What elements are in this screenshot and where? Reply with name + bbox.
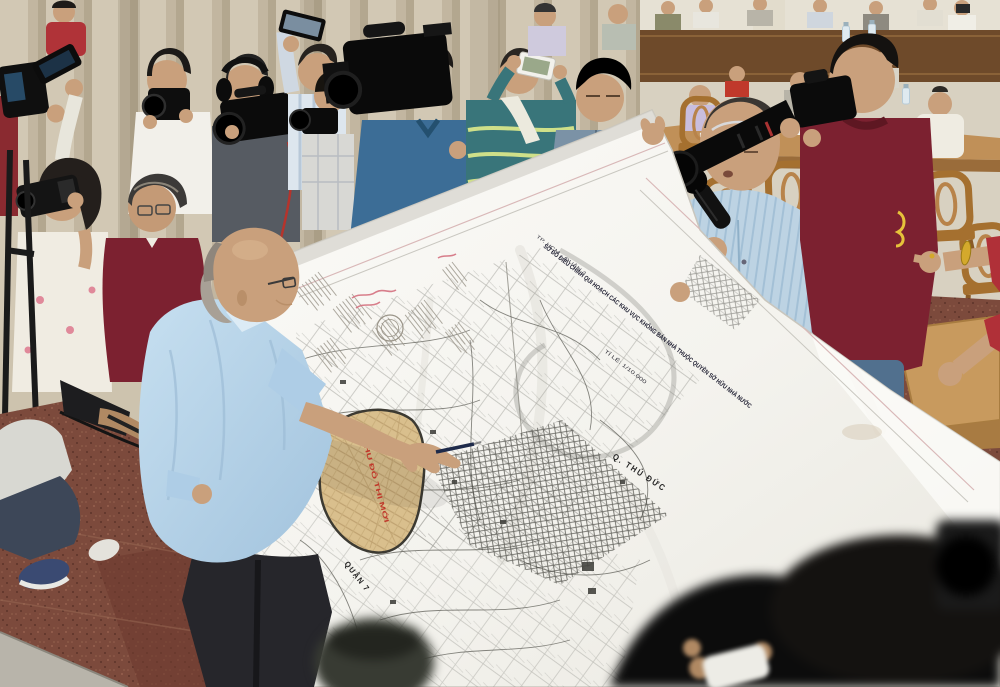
water-bottle <box>903 84 910 104</box>
camera-icon <box>956 4 970 13</box>
hand <box>283 36 299 52</box>
scene-svg: TP. HCM - QUẬN 2 SƠ ĐỒ ĐIỀU CHỈNH QUI HO… <box>0 0 1000 687</box>
head-shine <box>232 240 268 260</box>
hand <box>780 118 800 138</box>
ear <box>237 290 247 306</box>
hand <box>65 79 83 97</box>
dslr-lens <box>143 95 165 117</box>
hand <box>143 115 157 129</box>
broadcast-camera-lens <box>324 71 361 108</box>
photo-press-conference-map: TP. HCM - QUẬN 2 SƠ ĐỒ ĐIỀU CHỈNH QUI HO… <box>0 0 1000 687</box>
trouser-crease <box>256 560 258 687</box>
hand <box>553 65 567 79</box>
dslr-lens <box>290 110 310 130</box>
hand <box>179 109 193 123</box>
hand <box>225 125 239 139</box>
headphone-cup <box>216 78 232 102</box>
hand <box>803 129 821 147</box>
resting-hand <box>938 362 962 386</box>
hand <box>192 484 212 504</box>
ring <box>930 254 935 259</box>
paper-stain <box>842 424 882 440</box>
mic-man-hand-on-map <box>670 282 690 302</box>
hand <box>507 55 521 69</box>
mouth <box>723 171 733 178</box>
finger <box>914 258 930 261</box>
arm <box>84 230 86 268</box>
hand <box>449 141 467 159</box>
